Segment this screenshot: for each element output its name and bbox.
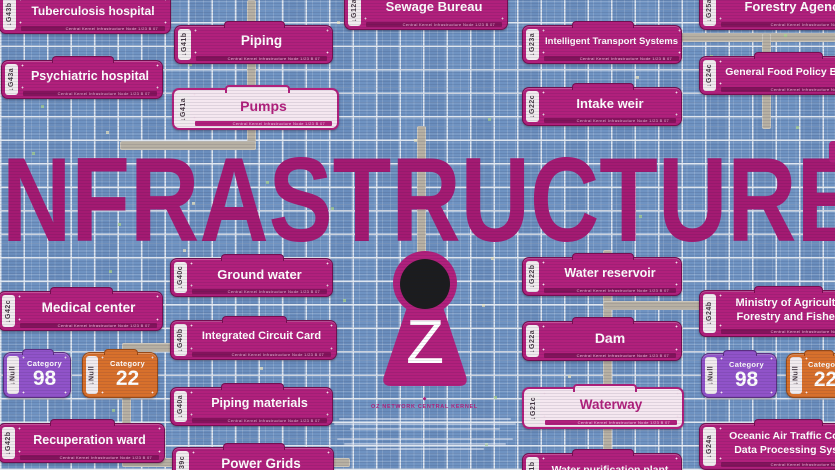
sign-fineprint: Central Kernel Infrastructure Node 1/23 … [20,323,157,328]
sign-tag-code: G43a [8,68,15,87]
sign-tag: ↓G40a [174,391,187,422]
badge-category-value: 22 [814,369,835,391]
down-arrow-icon: ↓ [5,319,12,323]
sign-tag-code: G24b [706,302,713,322]
sign-tag: ↓G40c [174,262,187,293]
sign-recuperation-ward[interactable]: ↓G42bRecuperation wardCentral Kernel Inf… [0,423,165,463]
sign-intelligent-transport-systems[interactable]: ↓G23aIntelligent Transport SystemsCentra… [522,25,682,64]
sign-piping[interactable]: ↓G41bPipingCentral Kernel Infrastructure… [174,25,333,64]
badge-category-98-right[interactable]: ↓NullCategory98 [701,353,777,398]
sign-piping-materials[interactable]: ↓G40aPiping materialsCentral Kernel Infr… [170,387,333,426]
down-arrow-icon: ↓ [351,18,358,22]
sign-label: Integrated Circuit Card [202,330,321,343]
sign-tag: ↓G25a [703,0,716,26]
sign-integrated-circuit-card[interactable]: ↓G40bIntegrated Circuit CardCentral Kern… [170,320,337,360]
sign-intake-weir[interactable]: ↓G22cIntake weirCentral Kernel Infrastru… [522,87,682,126]
sign-body: Intake weirCentral Kernel Infrastructure… [539,88,681,125]
sign-tag: ↓G21c [527,392,540,424]
sign-tag-code: G41b [181,33,188,53]
badge-tag-code: Null [10,365,17,380]
sign-tag: ↓G40b [174,324,187,356]
sign-tag: ↓G41a [177,93,190,125]
sign-fineprint: Central Kernel Infrastructure Node 1/23 … [545,420,677,425]
badge-category-value: 98 [735,369,758,391]
sign-pumps[interactable]: ↓G41aPumpsCentral Kernel Infrastructure … [172,88,339,130]
sign-body: General Food Policy BureauCentral Kernel… [716,57,835,94]
badge-category-22-right[interactable]: ↓NullCategory22 [786,353,835,398]
sign-fineprint: Central Kernel Infrastructure Node 1/23 … [721,329,835,334]
sign-label: Psychiatric hospital [31,69,149,84]
sign-tag-code: G24c [706,64,713,83]
sign-tag: ↓G24c [703,60,716,91]
sign-label: Ministry of Agriculture, [736,297,835,310]
badge-tag: ↓Null [705,357,717,394]
down-arrow-icon: ↓ [529,284,536,288]
badge-body: Category98 [19,353,70,397]
sign-body: Ministry of Agriculture,Forestry and Fis… [716,291,835,336]
sign-fineprint: Central Kernel Infrastructure Node 1/23 … [192,352,331,357]
sign-body: WaterwayCentral Kernel Infrastructure No… [540,389,682,427]
down-arrow-icon: ↓ [177,285,184,289]
sign-tag-code: G40b [177,328,184,348]
sign-body: Sewage BureauCentral Kernel Infrastructu… [361,0,507,29]
sign-tag: ↓G22c [526,91,539,122]
sign-tag: ↓G42b [2,427,15,459]
sign-sewage-bureau[interactable]: ↓G12aSewage BureauCentral Kernel Infrast… [344,0,508,30]
badge-category-98-left[interactable]: ↓NullCategory98 [3,352,71,398]
sign-psychiatric-hospital[interactable]: ↓G43aPsychiatric hospitalCentral Kernel … [1,60,163,99]
sign-body: Water reservoirCentral Kernel Infrastruc… [539,258,681,295]
sign-ministry-of-agriculture[interactable]: ↓G24bMinistry of Agriculture,Forestry an… [699,290,835,337]
sign-fineprint: Central Kernel Infrastructure Node 1/23 … [544,288,676,293]
sign-label: Water purification plant [552,464,669,470]
sign-body: Water purification plantCentral Kernel I… [539,454,681,470]
sign-label: Intelligent Transport Systems [545,36,678,47]
down-arrow-icon: ↓ [89,381,96,385]
sign-fineprint: Central Kernel Infrastructure Node 1/23 … [721,87,835,92]
down-arrow-icon: ↓ [177,348,184,352]
sign-body: DamCentral Kernel Infrastructure Node 1/… [539,322,681,360]
badge-tag-code: Null [793,366,800,381]
partial-sign-right-edge[interactable] [829,141,835,163]
badge-tag-code: Null [89,365,96,380]
down-arrow-icon: ↓ [793,381,800,385]
sign-body: Medical centerCentral Kernel Infrastruct… [15,292,162,330]
sign-label: Dam [595,330,625,347]
sign-label-line2: Data Processing System [734,444,835,457]
sign-tag-code: G40c [177,266,184,285]
sign-label: General Food Policy Bureau [725,66,835,79]
sign-tag-code: G22b [529,265,536,285]
down-arrow-icon: ↓ [706,454,713,458]
sign-fineprint: Central Kernel Infrastructure Node 1/23 … [544,118,676,123]
sign-dam[interactable]: ↓G22aDamCentral Kernel Infrastructure No… [522,321,682,361]
sign-forestry-agency[interactable]: ↓G25aForestry AgencyCentral Kernel Infra… [699,0,835,30]
down-arrow-icon: ↓ [10,381,17,385]
down-arrow-icon: ↓ [706,321,713,325]
badge-category-value: 22 [116,368,139,390]
badge-body: Category22 [802,354,835,397]
sign-tag: ↓G22a [526,325,539,357]
down-arrow-icon: ↓ [177,414,184,418]
sign-body: Oceanic Air Traffic ControlData Processi… [716,424,835,469]
sign-tag: ↓G43a [5,64,18,95]
sign-tag-code: G39c [179,455,186,470]
sign-label: Medical center [42,300,136,316]
sign-fineprint: Central Kernel Infrastructure Node 1/23 … [721,462,835,467]
sign-fineprint: Central Kernel Infrastructure Node 1/23 … [20,455,159,460]
sign-tag-code: G24a [706,435,713,454]
sign-fineprint: Central Kernel Infrastructure Node 1/23 … [544,353,676,358]
sign-layer: ↓G43bTuberculosis hospitalCentral Kernel… [0,0,835,470]
sign-tag: ↓G22b [526,261,539,292]
sign-tag: ↓G21b [526,457,539,470]
sign-body: Intelligent Transport SystemsCentral Ker… [539,26,684,63]
badge-tag: ↓Null [790,357,802,394]
sign-label: Intake weir [576,96,643,112]
sign-fineprint: Central Kernel Infrastructure Node 1/23 … [721,22,835,27]
sign-body: PumpsCentral Kernel Infrastructure Node … [190,90,337,128]
sign-water-reservoir[interactable]: ↓G22bWater reservoirCentral Kernel Infra… [522,257,682,296]
sign-label: Piping [241,33,282,49]
sign-tag: ↓G24b [703,294,716,333]
oz-infrastructure-screen: INFRASTRUCTURE Z ◆ OZ NETWORK CENTRAL KE… [0,0,835,470]
sign-power-grids[interactable]: ↓G39cPower GridsCentral Kernel Infrastru… [172,447,334,470]
sign-tag: ↓G42c [2,295,15,327]
sign-tag-code: G43b [6,2,13,22]
down-arrow-icon: ↓ [529,52,536,56]
sign-tag: ↓G24a [703,427,716,466]
sign-tag: ↓G39c [176,451,189,470]
sign-tag: ↓G41b [178,29,191,60]
sign-general-food-policy-bureau[interactable]: ↓G24cGeneral Food Policy BureauCentral K… [699,56,835,95]
sign-label: Recuperation ward [33,433,146,448]
down-arrow-icon: ↓ [6,22,13,26]
sign-label: Pumps [240,98,287,115]
down-arrow-icon: ↓ [8,87,15,91]
sign-label: Waterway [580,397,643,413]
sign-tag-code: G21b [529,461,536,470]
sign-waterway[interactable]: ↓G21cWaterwayCentral Kernel Infrastructu… [522,387,684,429]
sign-label: Oceanic Air Traffic Control [729,430,835,443]
sign-tag-code: G21c [530,396,537,415]
sign-fineprint: Central Kernel Infrastructure Node 1/23 … [196,56,327,61]
sign-tag: ↓G23a [526,29,539,60]
sign-body: Integrated Circuit CardCentral Kernel In… [187,321,336,359]
sign-body: Forestry AgencyCentral Kernel Infrastruc… [716,0,835,29]
sign-ground-water[interactable]: ↓G40cGround waterCentral Kernel Infrastr… [170,258,333,297]
down-arrow-icon: ↓ [5,451,12,455]
sign-tag-code: G25a [706,0,713,18]
sign-tag-code: G40a [177,395,184,414]
sign-label: Sewage Bureau [386,0,483,15]
sign-fineprint: Central Kernel Infrastructure Node 1/23 … [23,91,157,96]
down-arrow-icon: ↓ [706,83,713,87]
sign-label: Forestry Agency [744,0,835,15]
down-arrow-icon: ↓ [706,18,713,22]
sign-tag-code: G22c [529,95,536,114]
badge-body: Category98 [717,354,776,397]
sign-tuberculosis-hospital[interactable]: ↓G43bTuberculosis hospitalCentral Kernel… [0,0,171,34]
sign-label-line2: Forestry and Fisheries [737,311,835,324]
sign-fineprint: Central Kernel Infrastructure Node 1/23 … [195,121,332,126]
sign-tag: ↓G12a [348,0,361,26]
badge-body: Category22 [98,353,157,397]
down-arrow-icon: ↓ [708,381,715,385]
sign-fineprint: Central Kernel Infrastructure Node 1/23 … [21,26,165,31]
sign-water-purification-plant[interactable]: ↓G21bWater purification plantCentral Ker… [522,453,682,470]
sign-label: Water reservoir [564,266,655,281]
down-arrow-icon: ↓ [530,416,537,420]
sign-oceanic-air-traffic-control[interactable]: ↓G24aOceanic Air Traffic ControlData Pro… [699,423,835,470]
down-arrow-icon: ↓ [529,349,536,353]
sign-body: Power GridsCentral Kernel Infrastructure… [189,448,333,470]
sign-body: PipingCentral Kernel Infrastructure Node… [191,26,332,63]
sign-body: Piping materialsCentral Kernel Infrastru… [187,388,332,425]
down-arrow-icon: ↓ [529,114,536,118]
sign-tag-code: G23a [529,33,536,52]
sign-tag: ↓G43b [3,0,16,30]
sign-tag-code: G42c [5,299,12,318]
badge-tag-code: Null [708,366,715,381]
sign-tag-code: G41a [180,97,187,116]
sign-fineprint: Central Kernel Infrastructure Node 1/23 … [544,56,679,61]
badge-category-22-left[interactable]: ↓NullCategory22 [82,352,158,398]
sign-tag-code: G22a [529,329,536,348]
sign-medical-center[interactable]: ↓G42cMedical centerCentral Kernel Infras… [0,291,163,331]
sign-fineprint: Central Kernel Infrastructure Node 1/23 … [192,418,327,423]
sign-body: Psychiatric hospitalCentral Kernel Infra… [18,61,162,98]
sign-body: Recuperation wardCentral Kernel Infrastr… [15,424,164,462]
sign-label: Tuberculosis hospital [31,4,154,18]
down-arrow-icon: ↓ [181,52,188,56]
sign-body: Tuberculosis hospitalCentral Kernel Infr… [16,0,170,33]
badge-tag: ↓Null [7,356,19,394]
sign-label: Piping materials [211,396,308,411]
sign-tag-code: G42b [5,431,12,451]
sign-label: Power Grids [221,456,301,470]
badge-category-value: 98 [33,368,56,390]
sign-tag-code: G12a [351,0,358,18]
sign-body: Ground waterCentral Kernel Infrastructur… [187,259,332,296]
sign-label: Ground water [217,267,302,283]
sign-fineprint: Central Kernel Infrastructure Node 1/23 … [192,289,327,294]
sign-fineprint: Central Kernel Infrastructure Node 1/23 … [366,22,502,27]
badge-tag: ↓Null [86,356,98,394]
down-arrow-icon: ↓ [180,117,187,121]
